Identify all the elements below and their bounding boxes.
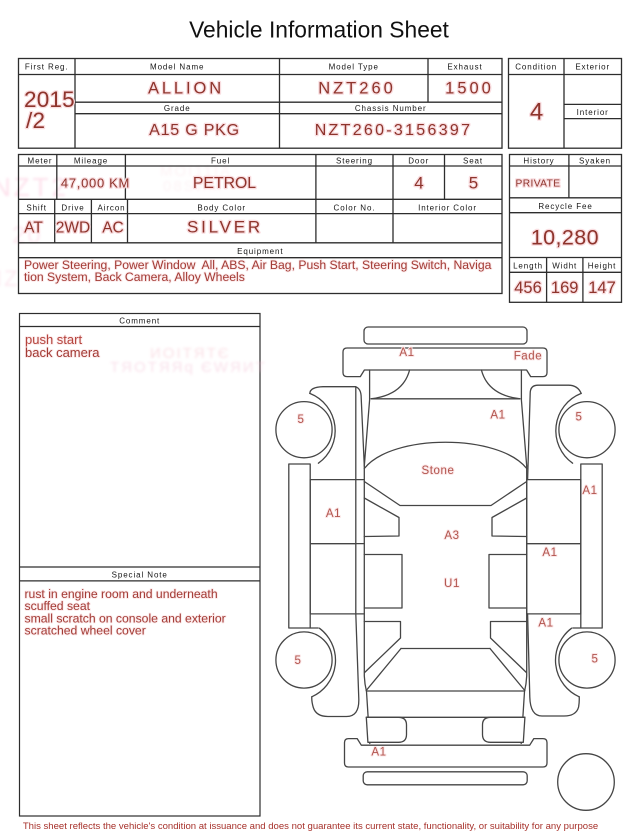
svg-text:Seat: Seat — [463, 157, 483, 166]
svg-text:AC: AC — [102, 220, 124, 237]
svg-text:Fuel: Fuel — [211, 157, 230, 166]
svg-text:A1: A1 — [371, 747, 386, 759]
svg-text:2WD: 2WD — [56, 220, 90, 237]
svg-text:Meter: Meter — [28, 157, 53, 166]
svg-text:Recycle Fee: Recycle Fee — [538, 202, 592, 211]
svg-text:5: 5 — [469, 174, 478, 193]
svg-text:Mileage: Mileage — [74, 157, 108, 166]
svg-text:Exterior: Exterior — [575, 63, 610, 72]
svg-text:tion System, Back Camera, Allo: tion System, Back Camera, Alloy Wheels — [24, 270, 245, 284]
svg-text:NZT260-3156397: NZT260-3156397 — [315, 122, 473, 139]
svg-text:AT: AT — [24, 220, 43, 237]
svg-text:Length: Length — [513, 262, 543, 271]
svg-text:147: 147 — [588, 279, 616, 297]
svg-text:A1: A1 — [490, 410, 505, 422]
svg-text:A15 G PKG: A15 G PKG — [149, 122, 240, 139]
svg-text:A1: A1 — [326, 508, 341, 520]
svg-text:Equipment: Equipment — [237, 247, 283, 256]
svg-text:NZT2: NZT2 — [0, 172, 69, 202]
svg-text:Condition: Condition — [515, 63, 557, 72]
svg-text:456: 456 — [514, 279, 542, 297]
svg-text:Shift: Shift — [26, 204, 47, 213]
svg-text:Interior: Interior — [577, 108, 609, 117]
svg-text:U1: U1 — [444, 578, 460, 590]
svg-text:Color No.: Color No. — [334, 204, 376, 213]
svg-text:This sheet reflects the vehicl: This sheet reflects the vehicle's condit… — [23, 821, 598, 832]
svg-text:Grade: Grade — [164, 104, 191, 113]
svg-text:4: 4 — [530, 99, 543, 126]
svg-text:Stone: Stone — [421, 465, 454, 477]
svg-text:169: 169 — [551, 279, 579, 297]
svg-text:IZ: IZ — [0, 266, 20, 291]
svg-text:Fade: Fade — [514, 351, 543, 363]
svg-text:Steering: Steering — [336, 157, 373, 166]
svg-text:Model Name: Model Name — [150, 63, 204, 72]
svg-text:Model Type: Model Type — [329, 63, 379, 72]
svg-text:TЯOTЯЯq ЄWЯИT: TЯOTЯЯq ЄWЯИT — [110, 359, 267, 376]
svg-text:NZT260: NZT260 — [318, 80, 396, 98]
svg-text:5: 5 — [295, 655, 302, 667]
svg-text:5: 5 — [576, 412, 583, 424]
svg-text:Body Color: Body Color — [197, 204, 246, 213]
svg-text:10,280: 10,280 — [531, 226, 599, 250]
svg-text:scratched wheel cover: scratched wheel cover — [25, 624, 146, 638]
svg-text:Door: Door — [408, 157, 429, 166]
svg-text:Comment: Comment — [119, 317, 160, 326]
svg-text:PETROL: PETROL — [193, 175, 256, 192]
svg-text:A1: A1 — [582, 485, 597, 497]
svg-text:back camera: back camera — [25, 345, 100, 360]
svg-text:1500: 1500 — [445, 80, 494, 98]
svg-text:A1: A1 — [538, 618, 553, 630]
svg-text:Special Note: Special Note — [112, 570, 168, 579]
svg-text:History: History — [523, 157, 554, 166]
svg-text:Drive: Drive — [61, 204, 84, 213]
svg-text:Height: Height — [588, 262, 617, 271]
svg-text:A3: A3 — [444, 530, 459, 542]
svg-text:/2: /2 — [26, 108, 45, 133]
svg-text:ALLION: ALLION — [148, 80, 224, 98]
svg-text:A1: A1 — [542, 547, 557, 559]
svg-text:Aircon: Aircon — [97, 204, 125, 213]
svg-text:Widht: Widht — [552, 262, 577, 271]
svg-text:Interior Color: Interior Color — [418, 204, 477, 213]
svg-text:A1: A1 — [399, 347, 414, 359]
svg-text:5: 5 — [592, 654, 599, 666]
svg-text:First Reg.: First Reg. — [25, 63, 69, 72]
svg-text:Exhaust: Exhaust — [447, 63, 482, 72]
svg-text:Syaken: Syaken — [579, 157, 611, 166]
svg-text:4: 4 — [414, 174, 423, 193]
svg-text:Vehicle Information Sheet: Vehicle Information Sheet — [189, 17, 449, 43]
svg-text:SILVER: SILVER — [187, 218, 263, 237]
svg-text:PRIVATE: PRIVATE — [516, 179, 561, 190]
svg-text:47,000 KM: 47,000 KM — [61, 176, 130, 191]
svg-text:5: 5 — [298, 414, 305, 426]
svg-text:Chassis Number: Chassis Number — [355, 104, 427, 113]
